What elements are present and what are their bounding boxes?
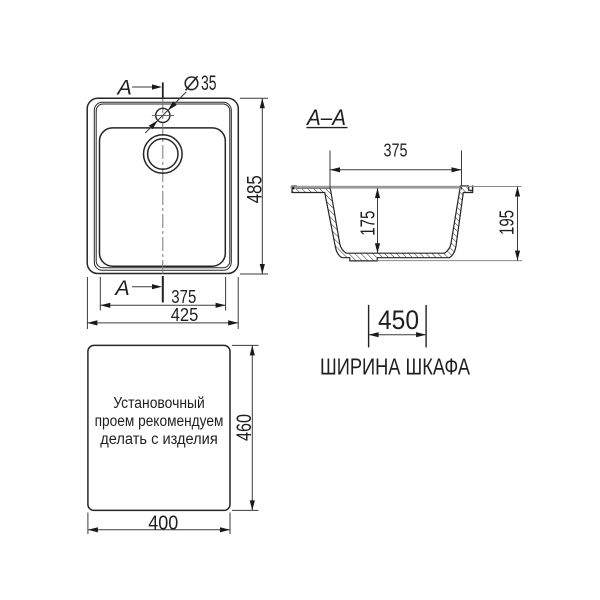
svg-text:175: 175 <box>358 211 380 236</box>
svg-text:450: 450 <box>378 305 419 335</box>
svg-text:ШИРИНА ШКАФА: ШИРИНА ШКАФА <box>320 354 471 380</box>
svg-text:375: 375 <box>384 140 408 161</box>
svg-text:делать с изделия: делать с изделия <box>100 431 218 448</box>
svg-text:Установочный: Установочный <box>113 395 205 412</box>
svg-text:400: 400 <box>148 512 178 534</box>
svg-text:A: A <box>116 75 132 99</box>
svg-text:A–A: A–A <box>305 105 346 130</box>
svg-text:485: 485 <box>244 175 267 203</box>
svg-text:460: 460 <box>233 414 256 441</box>
svg-text:195: 195 <box>497 210 519 235</box>
svg-text:425: 425 <box>171 305 199 325</box>
svg-text:A: A <box>113 276 129 300</box>
svg-text:35: 35 <box>201 72 217 95</box>
svg-text:проем рекомендуем: проем рекомендуем <box>95 413 224 430</box>
